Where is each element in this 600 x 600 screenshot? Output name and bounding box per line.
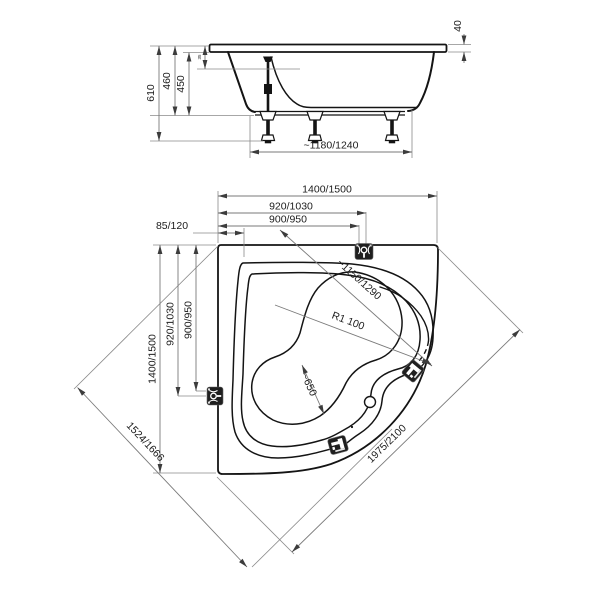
side-view: 610 460 450 35 40 ~1180/1240 <box>145 20 471 158</box>
jet-icon-top <box>355 244 373 260</box>
dim-total-height: 610 <box>145 84 157 102</box>
bathtub-technical-drawing: 610 460 450 35 40 ~1180/1240 <box>0 0 600 600</box>
adjustable-foot <box>384 112 400 144</box>
dim-drain-offset-x: 900/950 <box>269 214 307 226</box>
dim-base-length: ~1180/1240 <box>304 140 359 152</box>
drawing-canvas: 610 460 450 35 40 ~1180/1240 <box>0 0 600 600</box>
dim-width-top: 1400/1500 <box>302 184 352 196</box>
side-rim <box>210 45 447 53</box>
plan-view: 1400/1500 920/1030 900/950 85/120 1400/1… <box>74 184 523 568</box>
side-inner-shell <box>271 57 417 108</box>
side-left-wall <box>228 52 255 112</box>
dim-corner-offset: 85/120 <box>156 220 188 232</box>
pillar-adjuster <box>264 84 272 94</box>
dim-height-left: 1400/1500 <box>147 334 159 384</box>
sensor-dot <box>351 426 353 428</box>
dim-apron-edge: 40 <box>452 20 464 32</box>
dim-drain-offset-y: 900/950 <box>183 301 195 339</box>
adjustable-foot <box>260 112 276 144</box>
drain <box>365 397 376 408</box>
dim-rim-detail: 35 <box>197 54 202 60</box>
dim-jet-offset-x: 920/1030 <box>269 201 313 213</box>
side-right-wall <box>408 52 434 111</box>
dim-jet-offset-y: 920/1030 <box>165 302 177 346</box>
dim-rim-height: 460 <box>161 72 173 90</box>
jet-icon-left <box>207 387 223 405</box>
dim-inner-depth: 450 <box>175 75 187 93</box>
